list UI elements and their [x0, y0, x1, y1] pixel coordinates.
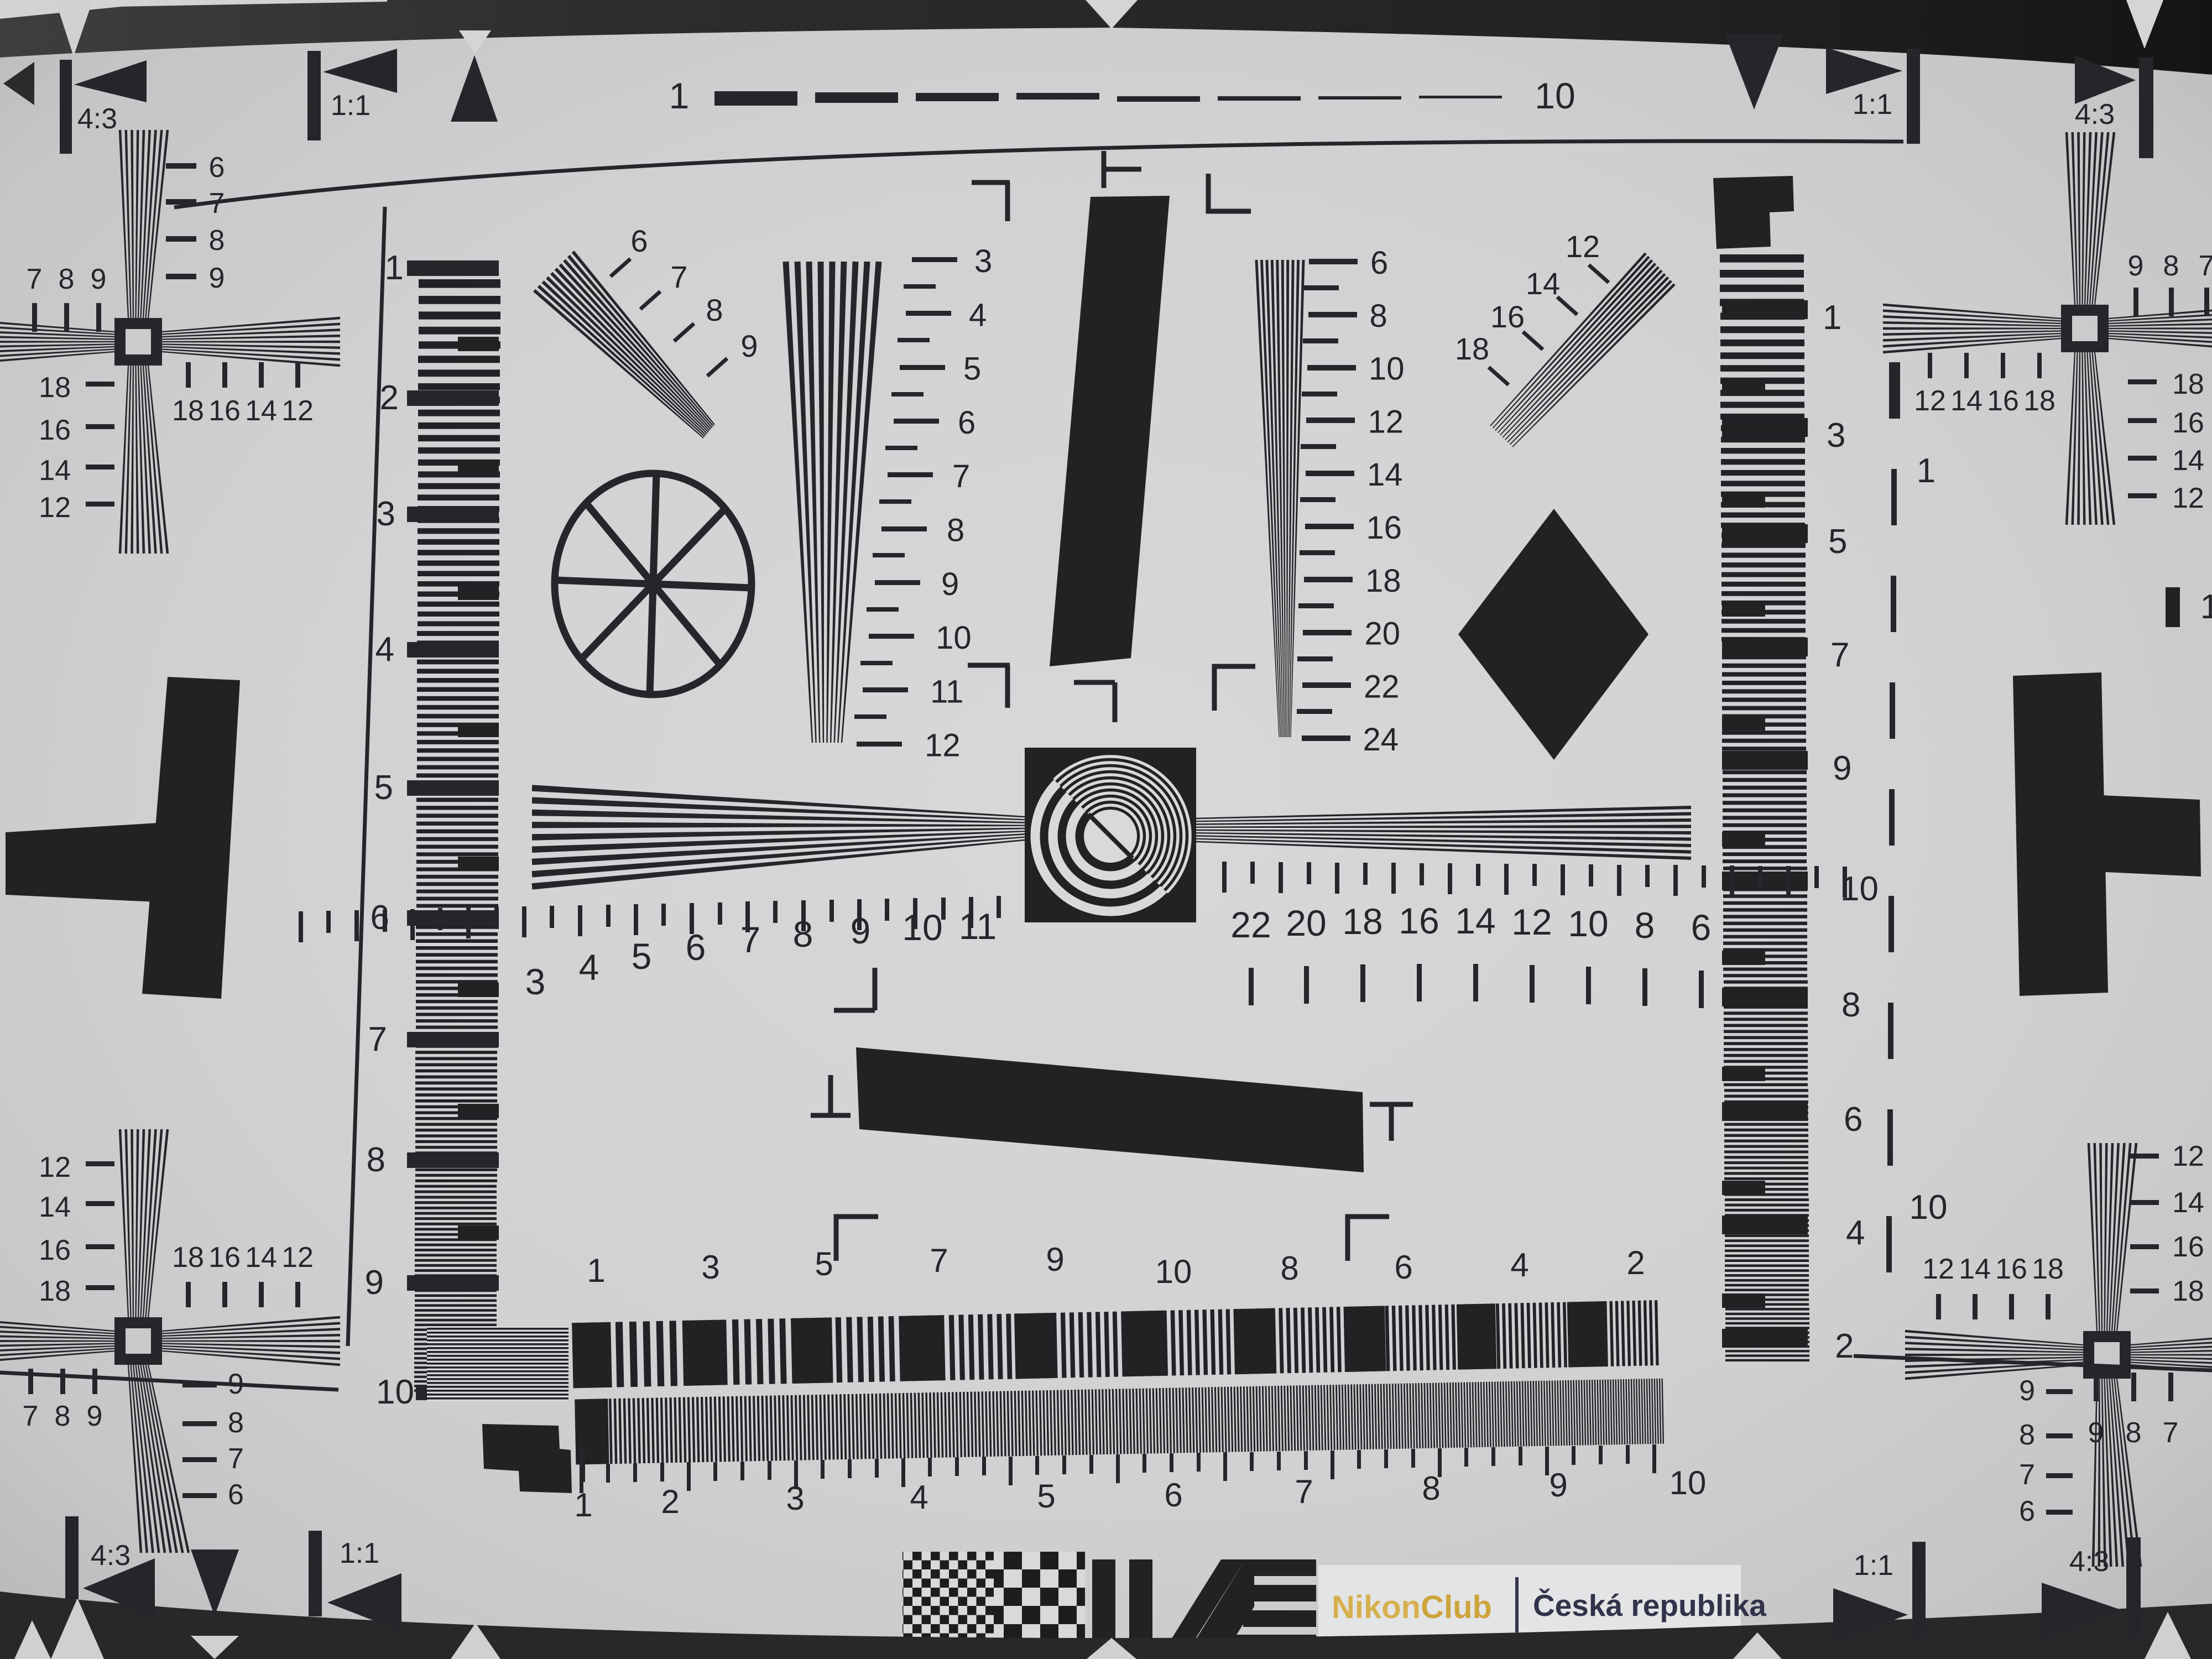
svg-text:7: 7 — [27, 263, 43, 295]
svg-text:14: 14 — [1959, 1253, 1991, 1285]
svg-text:8: 8 — [793, 914, 813, 954]
svg-text:5: 5 — [1828, 523, 1847, 561]
svg-text:4: 4 — [969, 297, 987, 333]
svg-text:18: 18 — [2032, 1253, 2064, 1285]
svg-text:1:1: 1:1 — [1854, 1550, 1893, 1582]
svg-text:12: 12 — [39, 492, 71, 524]
svg-text:14: 14 — [245, 395, 277, 427]
svg-text:14: 14 — [1367, 457, 1403, 493]
svg-text:8: 8 — [209, 225, 225, 257]
svg-text:9: 9 — [209, 262, 225, 294]
svg-text:16: 16 — [2172, 407, 2204, 439]
svg-text:14: 14 — [2172, 445, 2204, 477]
svg-text:1: 1 — [669, 75, 690, 116]
svg-text:6: 6 — [1394, 1249, 1412, 1286]
svg-text:8: 8 — [1635, 905, 1655, 946]
svg-text:9: 9 — [1833, 749, 1851, 787]
svg-text:8: 8 — [1280, 1250, 1298, 1287]
svg-text:8: 8 — [2019, 1419, 2035, 1451]
svg-text:2: 2 — [1626, 1244, 1645, 1281]
svg-text:9: 9 — [2088, 1417, 2104, 1449]
svg-text:8: 8 — [1422, 1470, 1440, 1507]
svg-text:5: 5 — [815, 1245, 833, 1282]
svg-text:14: 14 — [1950, 385, 1983, 417]
svg-text:16: 16 — [1995, 1253, 2027, 1285]
svg-text:1: 1 — [587, 1252, 605, 1289]
svg-text:5: 5 — [1037, 1478, 1055, 1515]
svg-text:20: 20 — [1365, 616, 1401, 652]
svg-text:3: 3 — [701, 1249, 719, 1286]
svg-text:16: 16 — [39, 414, 71, 446]
svg-text:9: 9 — [228, 1368, 244, 1400]
svg-text:18: 18 — [172, 395, 204, 427]
svg-text:8: 8 — [228, 1407, 244, 1439]
svg-text:4:3: 4:3 — [77, 103, 117, 135]
svg-text:9: 9 — [91, 263, 107, 295]
svg-text:7: 7 — [1830, 636, 1849, 674]
svg-text:4:3: 4:3 — [2075, 98, 2115, 131]
svg-text:5: 5 — [632, 936, 652, 977]
svg-text:8: 8 — [2163, 250, 2179, 282]
svg-text:7: 7 — [209, 187, 225, 220]
svg-text:7: 7 — [670, 259, 687, 294]
svg-text:Česká republika: Česká republika — [1533, 1588, 1766, 1623]
svg-text:7: 7 — [2019, 1459, 2035, 1491]
svg-text:1: 1 — [385, 249, 404, 287]
svg-text:10: 10 — [936, 620, 972, 656]
svg-text:22: 22 — [1364, 669, 1400, 705]
svg-text:7: 7 — [23, 1400, 39, 1432]
svg-text:8: 8 — [947, 513, 964, 549]
svg-text:9: 9 — [365, 1264, 384, 1302]
svg-text:7: 7 — [2163, 1417, 2179, 1449]
svg-text:6: 6 — [1370, 245, 1388, 281]
svg-text:20: 20 — [1286, 902, 1326, 943]
svg-text:12: 12 — [281, 1241, 314, 1274]
svg-text:6: 6 — [630, 223, 648, 258]
svg-text:4: 4 — [1510, 1246, 1528, 1284]
svg-text:4:3: 4:3 — [2069, 1546, 2109, 1578]
svg-text:4: 4 — [375, 630, 394, 669]
svg-text:9: 9 — [1046, 1241, 1064, 1278]
svg-text:18: 18 — [172, 1241, 204, 1274]
svg-text:1: 1 — [574, 1486, 592, 1524]
svg-text:NikonClub: NikonClub — [1332, 1589, 1492, 1625]
svg-text:3: 3 — [377, 495, 395, 533]
svg-text:8: 8 — [706, 293, 723, 327]
svg-text:12: 12 — [1511, 901, 1552, 942]
svg-text:4:3: 4:3 — [91, 1540, 131, 1572]
svg-text:14: 14 — [245, 1241, 277, 1274]
svg-text:18: 18 — [39, 1275, 71, 1307]
svg-text:6: 6 — [958, 405, 975, 441]
svg-text:10: 10 — [376, 1373, 414, 1411]
svg-text:14: 14 — [39, 455, 71, 487]
svg-text:6: 6 — [1844, 1100, 1863, 1139]
svg-text:5: 5 — [963, 351, 981, 387]
svg-text:22: 22 — [1230, 904, 1271, 945]
svg-text:16: 16 — [1987, 385, 2019, 417]
svg-text:12: 12 — [281, 395, 314, 427]
svg-text:7: 7 — [1295, 1473, 1313, 1510]
svg-text:1:1: 1:1 — [331, 90, 371, 122]
svg-text:9: 9 — [2019, 1375, 2035, 1407]
svg-text:1: 1 — [2200, 588, 2212, 626]
svg-text:6: 6 — [2019, 1495, 2035, 1527]
svg-text:16: 16 — [1366, 510, 1402, 546]
svg-text:16: 16 — [208, 395, 241, 427]
svg-text:14: 14 — [1455, 900, 1495, 941]
svg-text:16: 16 — [1399, 900, 1439, 941]
svg-text:6: 6 — [1164, 1477, 1182, 1514]
svg-text:10: 10 — [1535, 75, 1575, 116]
svg-text:4: 4 — [1846, 1214, 1865, 1252]
svg-text:14: 14 — [2172, 1187, 2204, 1219]
svg-text:8: 8 — [367, 1141, 385, 1179]
svg-text:7: 7 — [740, 919, 761, 960]
svg-text:11: 11 — [959, 906, 997, 947]
svg-text:18: 18 — [1342, 901, 1383, 942]
svg-text:9: 9 — [740, 328, 758, 363]
svg-text:12: 12 — [1922, 1253, 1954, 1285]
svg-text:2: 2 — [380, 379, 399, 417]
svg-text:7: 7 — [368, 1020, 387, 1058]
svg-text:3: 3 — [525, 961, 546, 1002]
svg-text:9: 9 — [941, 566, 959, 602]
svg-text:12: 12 — [925, 728, 961, 764]
svg-text:18: 18 — [39, 372, 71, 404]
svg-text:1: 1 — [1823, 299, 1841, 337]
svg-text:14: 14 — [39, 1191, 71, 1223]
svg-text:16: 16 — [1490, 299, 1525, 334]
svg-text:8: 8 — [55, 1400, 71, 1432]
svg-text:3: 3 — [786, 1480, 804, 1517]
svg-text:18: 18 — [2023, 385, 2056, 417]
svg-text:8: 8 — [2126, 1417, 2142, 1449]
svg-text:18: 18 — [2172, 1275, 2204, 1307]
svg-text:9: 9 — [87, 1400, 103, 1432]
svg-text:24: 24 — [1363, 722, 1399, 758]
svg-text:12: 12 — [1914, 385, 1946, 417]
svg-text:11: 11 — [930, 674, 963, 709]
svg-text:4: 4 — [910, 1479, 928, 1516]
svg-text:10: 10 — [1568, 903, 1608, 944]
svg-text:8: 8 — [1370, 298, 1387, 334]
svg-text:9: 9 — [851, 910, 871, 951]
svg-text:10: 10 — [1155, 1253, 1192, 1290]
svg-text:8: 8 — [1841, 986, 1860, 1024]
svg-text:12: 12 — [2172, 482, 2204, 514]
svg-text:3: 3 — [974, 243, 992, 279]
svg-text:2: 2 — [661, 1483, 679, 1520]
svg-text:10: 10 — [1910, 1188, 1948, 1227]
svg-text:9: 9 — [2128, 250, 2144, 282]
svg-text:1: 1 — [1917, 452, 1936, 490]
svg-text:7: 7 — [228, 1443, 244, 1475]
svg-text:18: 18 — [1455, 331, 1489, 366]
svg-text:3: 3 — [1827, 416, 1845, 455]
svg-text:16: 16 — [208, 1241, 241, 1274]
svg-text:9: 9 — [1549, 1467, 1567, 1504]
svg-text:6: 6 — [1691, 907, 1712, 948]
svg-text:18: 18 — [2172, 368, 2204, 400]
svg-text:16: 16 — [2172, 1231, 2204, 1263]
svg-text:10: 10 — [1670, 1464, 1707, 1501]
svg-text:12: 12 — [2172, 1140, 2204, 1172]
svg-text:8: 8 — [59, 263, 75, 295]
svg-text:6: 6 — [686, 927, 706, 968]
svg-text:18: 18 — [1365, 563, 1401, 599]
svg-text:12: 12 — [39, 1151, 71, 1183]
svg-text:4: 4 — [579, 947, 599, 988]
svg-text:12: 12 — [1566, 229, 1600, 264]
svg-text:12: 12 — [1368, 404, 1404, 440]
svg-text:6: 6 — [209, 152, 225, 184]
svg-text:2: 2 — [1835, 1327, 1854, 1365]
svg-text:5: 5 — [374, 769, 393, 807]
svg-text:7: 7 — [2199, 250, 2212, 282]
svg-text:16: 16 — [39, 1234, 71, 1266]
svg-text:7: 7 — [930, 1242, 948, 1279]
svg-text:10: 10 — [1369, 351, 1405, 387]
svg-text:1:1: 1:1 — [340, 1537, 379, 1569]
svg-text:7: 7 — [952, 458, 970, 494]
svg-text:1:1: 1:1 — [1853, 88, 1892, 121]
svg-text:14: 14 — [1526, 266, 1560, 301]
svg-text:6: 6 — [228, 1479, 244, 1511]
svg-text:10: 10 — [902, 907, 942, 948]
